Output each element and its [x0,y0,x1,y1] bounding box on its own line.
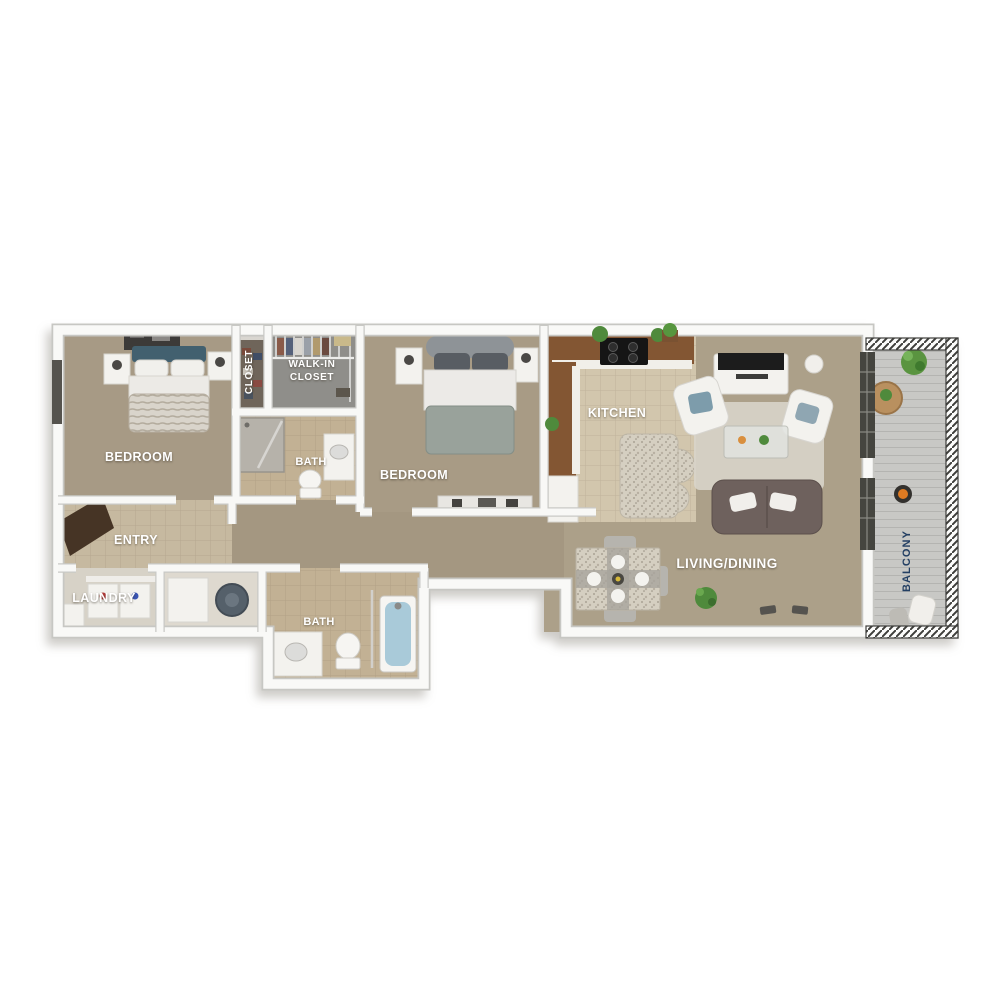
plate [611,589,625,603]
room-label-bedroom-2: BEDROOM [380,468,448,482]
blanket [426,406,514,454]
toilet [299,470,321,498]
tv [718,353,784,370]
room-label-balcony: BALCONY [901,530,913,592]
queen-bed [424,336,516,454]
cabinet-plant [592,326,608,342]
room-label-bedroom-1: BEDROOM [105,450,173,464]
accent-pillow [687,391,713,415]
pillow [135,360,168,377]
plate [635,572,649,586]
pillow [472,353,508,372]
plate [587,572,601,586]
bathtub [380,596,416,672]
tufted-sofa [712,480,822,534]
laundry-shelf [86,576,156,582]
decor [738,436,746,444]
room-label-kitchen: KITCHEN [588,406,646,420]
dining-set [576,536,668,622]
tv-console [714,353,788,394]
lamp [404,355,414,365]
toilet [336,633,360,669]
potted-plant [880,389,892,401]
fire-pit [894,485,912,503]
room-label-walk-in-line2: CLOSET [290,372,334,383]
storage-box [336,388,350,397]
water-heater [216,584,248,616]
pillow [434,353,470,372]
floor-plan-svg: BEDROOM CLOSET WALK-IN CLOSET BATH BEDRO… [0,0,1000,1000]
floor-plan-page: BEDROOM CLOSET WALK-IN CLOSET BATH BEDRO… [0,0,1000,1000]
faucet [395,603,402,610]
room-label-laundry: LAUNDRY [72,591,136,605]
shrub [901,349,927,375]
floor-plant [695,587,717,609]
plate [611,555,625,569]
queen-bed [129,346,209,432]
lamp [112,360,122,370]
vanity-sink [324,434,354,480]
patterned-blanket [129,394,209,432]
soundbar [736,374,768,379]
planter-basket [805,355,823,373]
planter-plant [663,323,677,337]
table-plant [759,435,769,445]
room-label-closet: CLOSET [244,350,255,394]
bed-sheet [424,370,516,410]
apartment-floor-plan: BEDROOM CLOSET WALK-IN CLOSET BATH BEDRO… [52,323,958,684]
shoes [792,605,809,615]
room-label-bath-1: BATH [295,456,326,468]
storage-box [168,578,208,622]
counter-edge [572,366,580,474]
shower [240,418,284,472]
sliding-glass-doors [860,352,875,550]
lamp [521,353,531,363]
coffee-table [724,426,788,458]
pillow [171,360,204,377]
room-label-bath-2: BATH [303,616,334,628]
cooktop-stove [600,338,648,365]
room-label-walk-in-line1: WALK-IN [289,359,336,370]
room-label-entry: ENTRY [114,533,158,547]
bedroom-window [52,360,62,424]
nightstand [396,348,422,384]
fruit [616,577,621,582]
room-label-living-dining: LIVING/DINING [676,556,777,571]
vanity-sink [272,632,322,676]
lamp [215,357,225,367]
cabinet-plant [545,417,559,431]
